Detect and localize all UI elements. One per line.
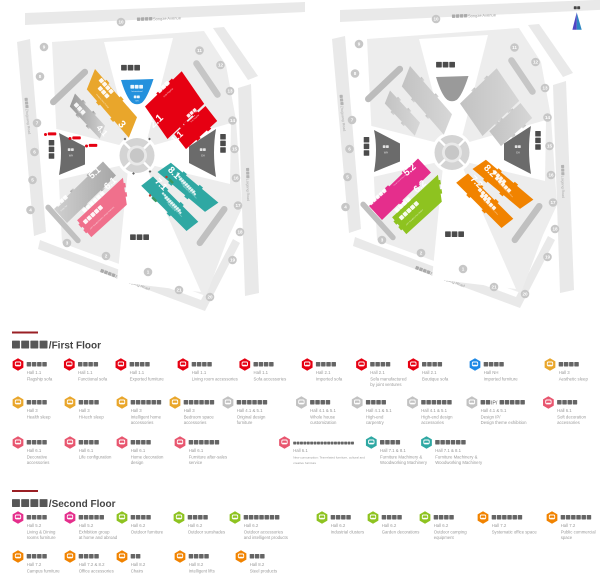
svg-text:Outdoor accessories: Outdoor accessories	[244, 530, 283, 535]
svg-text:Steel products: Steel products	[250, 569, 277, 574]
svg-text:Exported furniture: Exported furniture	[130, 377, 165, 382]
svg-text:accessories: accessories	[421, 420, 444, 425]
svg-text:furniture: furniture	[237, 420, 253, 425]
svg-text:space: space	[561, 535, 573, 540]
svg-text:Hall 1.1: Hall 1.1	[78, 370, 93, 375]
svg-text:Hall NH: Hall NH	[484, 370, 499, 375]
svg-text:Furniture Machinery &: Furniture Machinery &	[380, 455, 422, 460]
svg-text:Flagship sofa: Flagship sofa	[27, 377, 53, 382]
svg-text:Intelligent home: Intelligent home	[131, 415, 162, 420]
svg-text:Hall 6.2: Hall 6.2	[382, 523, 397, 528]
svg-text:Hall 1.1: Hall 1.1	[254, 370, 269, 375]
svg-text:Laigang Road: Laigang Road	[245, 179, 250, 202]
svg-text:Hall 6.2: Hall 6.2	[188, 523, 203, 528]
svg-text:4: 4	[344, 205, 347, 210]
svg-text:Hall 6.1: Hall 6.1	[189, 448, 204, 453]
svg-text:Decorative: Decorative	[27, 455, 48, 460]
svg-text:accessories: accessories	[27, 460, 50, 465]
svg-text:21: 21	[176, 288, 182, 293]
svg-text:Exhibition group: Exhibition group	[79, 530, 110, 535]
svg-text:service: service	[189, 460, 203, 465]
svg-text:Intelligent lifts: Intelligent lifts	[189, 569, 215, 574]
svg-text:Hall 3: Hall 3	[27, 408, 39, 413]
svg-text:Whole house: Whole house	[310, 415, 336, 420]
svg-text:Hi-tech sleep: Hi-tech sleep	[79, 415, 105, 420]
svg-text:14: 14	[545, 115, 551, 120]
svg-text:20: 20	[207, 295, 213, 300]
svg-text:and intelligent products: and intelligent products	[244, 535, 288, 540]
svg-text:New consumption: Tea-related f: New consumption: Tea-related furniture, …	[293, 456, 365, 460]
svg-text:Hall 7.2: Hall 7.2	[492, 523, 507, 528]
svg-text:7: 7	[351, 118, 354, 123]
svg-text:19: 19	[545, 255, 551, 260]
svg-text:Hall 7.1 & 8.1: Hall 7.1 & 8.1	[435, 448, 461, 453]
svg-text:Hall 6.1: Hall 6.1	[293, 448, 308, 453]
svg-text:Woodworking Machinery: Woodworking Machinery	[380, 460, 428, 465]
svg-text:Outdoor camping: Outdoor camping	[434, 530, 468, 535]
svg-text:5: 5	[31, 178, 34, 183]
svg-text:15: 15	[547, 144, 553, 149]
svg-text:12: 12	[218, 63, 224, 68]
svg-text:Outdoor sunshades: Outdoor sunshades	[188, 530, 226, 535]
svg-text:8: 8	[39, 74, 42, 79]
svg-text:at home and abroad: at home and abroad	[79, 535, 118, 540]
svg-text:2: 2	[420, 251, 423, 256]
svg-text:Hall 1.1: Hall 1.1	[27, 370, 42, 375]
svg-text:7: 7	[36, 121, 39, 126]
svg-text:/First Floor: /First Floor	[49, 341, 101, 352]
svg-text:Imported sofa: Imported sofa	[316, 377, 343, 382]
svg-text:14: 14	[230, 118, 236, 123]
svg-text:Laigang Road: Laigang Road	[560, 176, 565, 199]
svg-text:carpentry: carpentry	[366, 420, 385, 425]
svg-text:19: 19	[230, 258, 236, 263]
svg-text:Hall 8.2: Hall 8.2	[131, 562, 146, 567]
svg-text:18: 18	[237, 230, 243, 235]
svg-text:WH: WH	[384, 151, 388, 155]
svg-text:equipment: equipment	[434, 535, 455, 540]
svg-text:Hall 3: Hall 3	[79, 408, 91, 413]
svg-text:1: 1	[147, 270, 150, 275]
svg-text:Hall 6.2: Hall 6.2	[331, 523, 346, 528]
svg-text:Hall 4.1 & 5.1: Hall 4.1 & 5.1	[481, 408, 507, 413]
svg-text:15: 15	[232, 147, 238, 152]
svg-text:Soft decoration: Soft decoration	[557, 415, 587, 420]
svg-text:3: 3	[381, 238, 384, 243]
svg-text:Hall 2.1: Hall 2.1	[370, 370, 385, 375]
svg-text:1: 1	[462, 267, 465, 272]
svg-text:9: 9	[358, 42, 361, 47]
svg-text:21: 21	[491, 285, 497, 290]
svg-text:10: 10	[433, 17, 439, 22]
svg-text:Aesthetic sleep: Aesthetic sleep	[559, 377, 589, 382]
svg-text:High-end: High-end	[366, 415, 384, 420]
svg-text:International: International	[131, 90, 143, 93]
svg-text:3: 3	[66, 241, 69, 246]
svg-text:Hall 5.2: Hall 5.2	[79, 523, 94, 528]
svg-text:Hall 8.2: Hall 8.2	[250, 562, 265, 567]
svg-text:10: 10	[118, 20, 124, 25]
svg-text:Systematic office space: Systematic office space	[492, 530, 538, 535]
svg-text:Hall 1.1: Hall 1.1	[192, 370, 207, 375]
svg-text:rooms furniture: rooms furniture	[27, 535, 57, 540]
svg-text:Hall 6.2: Hall 6.2	[131, 523, 146, 528]
svg-text:2: 2	[105, 254, 108, 259]
svg-text:Garden decorations: Garden decorations	[382, 530, 420, 535]
svg-text:13: 13	[227, 89, 233, 94]
svg-text:Hall 6.1: Hall 6.1	[557, 408, 572, 413]
svg-text:Hall 2.1: Hall 2.1	[316, 370, 331, 375]
svg-text:Industrial clusters: Industrial clusters	[331, 530, 364, 535]
svg-text:Living room accessories: Living room accessories	[192, 377, 238, 382]
svg-text:Outdoor furniture: Outdoor furniture	[131, 530, 164, 535]
svg-text:Hall 8.2: Hall 8.2	[189, 562, 204, 567]
svg-text:Hall 4.1 & 5.1: Hall 4.1 & 5.1	[237, 408, 263, 413]
svg-text:17: 17	[235, 203, 241, 208]
svg-text:Furniture Machinery &: Furniture Machinery &	[435, 455, 477, 460]
svg-text:Hall 5.2: Hall 5.2	[27, 523, 42, 528]
svg-text:5: 5	[346, 175, 349, 180]
svg-text:8: 8	[354, 71, 357, 76]
svg-text:creative furniture: creative furniture	[293, 461, 316, 465]
svg-text:Imported furniture: Imported furniture	[484, 377, 519, 382]
svg-text:accessories: accessories	[131, 420, 154, 425]
svg-text:Hall 7.2: Hall 7.2	[27, 562, 42, 567]
svg-text:WH: WH	[69, 154, 73, 158]
svg-text:Hall 2.1: Hall 2.1	[422, 370, 437, 375]
svg-text:Hall 1.1: Hall 1.1	[130, 370, 145, 375]
svg-text:design: design	[131, 460, 144, 465]
svg-text:Hall 3: Hall 3	[131, 408, 143, 413]
svg-text:Hall 6.2: Hall 6.2	[244, 523, 259, 528]
svg-text:Hall 3: Hall 3	[184, 408, 196, 413]
svg-text:20: 20	[522, 292, 528, 297]
svg-text:6: 6	[348, 147, 351, 152]
svg-text:Sofa accessories: Sofa accessories	[254, 377, 287, 382]
svg-text:Functional sofa: Functional sofa	[78, 377, 108, 382]
svg-text:accessories: accessories	[557, 420, 580, 425]
svg-text:/Second Floor: /Second Floor	[49, 499, 116, 510]
svg-text:Living & Dining: Living & Dining	[27, 530, 56, 535]
svg-text:16: 16	[233, 176, 239, 181]
svg-text:Furniture after-sales: Furniture after-sales	[189, 455, 227, 460]
svg-text:Hall 6.1: Hall 6.1	[79, 448, 94, 453]
svg-text:13: 13	[542, 86, 548, 91]
svg-text:by joint ventures: by joint ventures	[370, 382, 401, 387]
svg-text:Hall 4.1 & 5.1: Hall 4.1 & 5.1	[421, 408, 447, 413]
svg-text:11: 11	[197, 48, 202, 53]
svg-text:4: 4	[29, 208, 32, 213]
svg-text:EH: EH	[516, 151, 520, 155]
svg-text:17: 17	[550, 200, 556, 205]
svg-text:Health sleep: Health sleep	[27, 415, 51, 420]
svg-text:Boutique sofa: Boutique sofa	[422, 377, 449, 382]
svg-text:16: 16	[548, 173, 554, 178]
svg-text:Office accessories: Office accessories	[79, 569, 114, 574]
svg-text:Bedroom space: Bedroom space	[184, 415, 215, 420]
svg-text:Home decoration: Home decoration	[131, 455, 164, 460]
svg-text:Hall 7.2 & 8.2: Hall 7.2 & 8.2	[79, 562, 105, 567]
svg-text:Campus furniture: Campus furniture	[27, 569, 61, 574]
svg-text:Public commercial: Public commercial	[561, 530, 596, 535]
svg-text:Hall 6.1: Hall 6.1	[131, 448, 146, 453]
svg-text:6: 6	[33, 150, 36, 155]
svg-text:Sofa manufactured: Sofa manufactured	[370, 377, 407, 382]
svg-text:Woodworking Machinery: Woodworking Machinery	[435, 460, 483, 465]
svg-text:18: 18	[552, 227, 558, 232]
svg-text:Chairs: Chairs	[131, 569, 143, 574]
svg-text:Hall 7.1 & 8.1: Hall 7.1 & 8.1	[380, 448, 406, 453]
svg-text:Design theme exhibition: Design theme exhibition	[481, 420, 527, 425]
svg-text:Hall 6.2: Hall 6.2	[434, 523, 449, 528]
svg-text:Hall 7.2: Hall 7.2	[561, 523, 576, 528]
svg-text:11: 11	[512, 45, 517, 50]
svg-text:Hall 3: Hall 3	[559, 370, 571, 375]
svg-text:12: 12	[533, 60, 539, 65]
svg-text:High-end design: High-end design	[421, 415, 453, 420]
svg-text:IP/: IP/	[491, 401, 498, 407]
svg-text:accessories: accessories	[184, 420, 207, 425]
svg-text:Hall 6.1: Hall 6.1	[27, 448, 42, 453]
svg-text:Hall 4.1 & 5.1: Hall 4.1 & 5.1	[310, 408, 336, 413]
svg-text:customization: customization	[310, 420, 337, 425]
svg-text:Hall 4.1 & 5.1: Hall 4.1 & 5.1	[366, 408, 392, 413]
svg-text:9: 9	[43, 45, 46, 50]
svg-text:Original design: Original design	[237, 415, 266, 420]
svg-text:EH: EH	[201, 154, 205, 158]
svg-text:Design IP/: Design IP/	[481, 415, 502, 420]
svg-text:Life configuration: Life configuration	[79, 455, 112, 460]
